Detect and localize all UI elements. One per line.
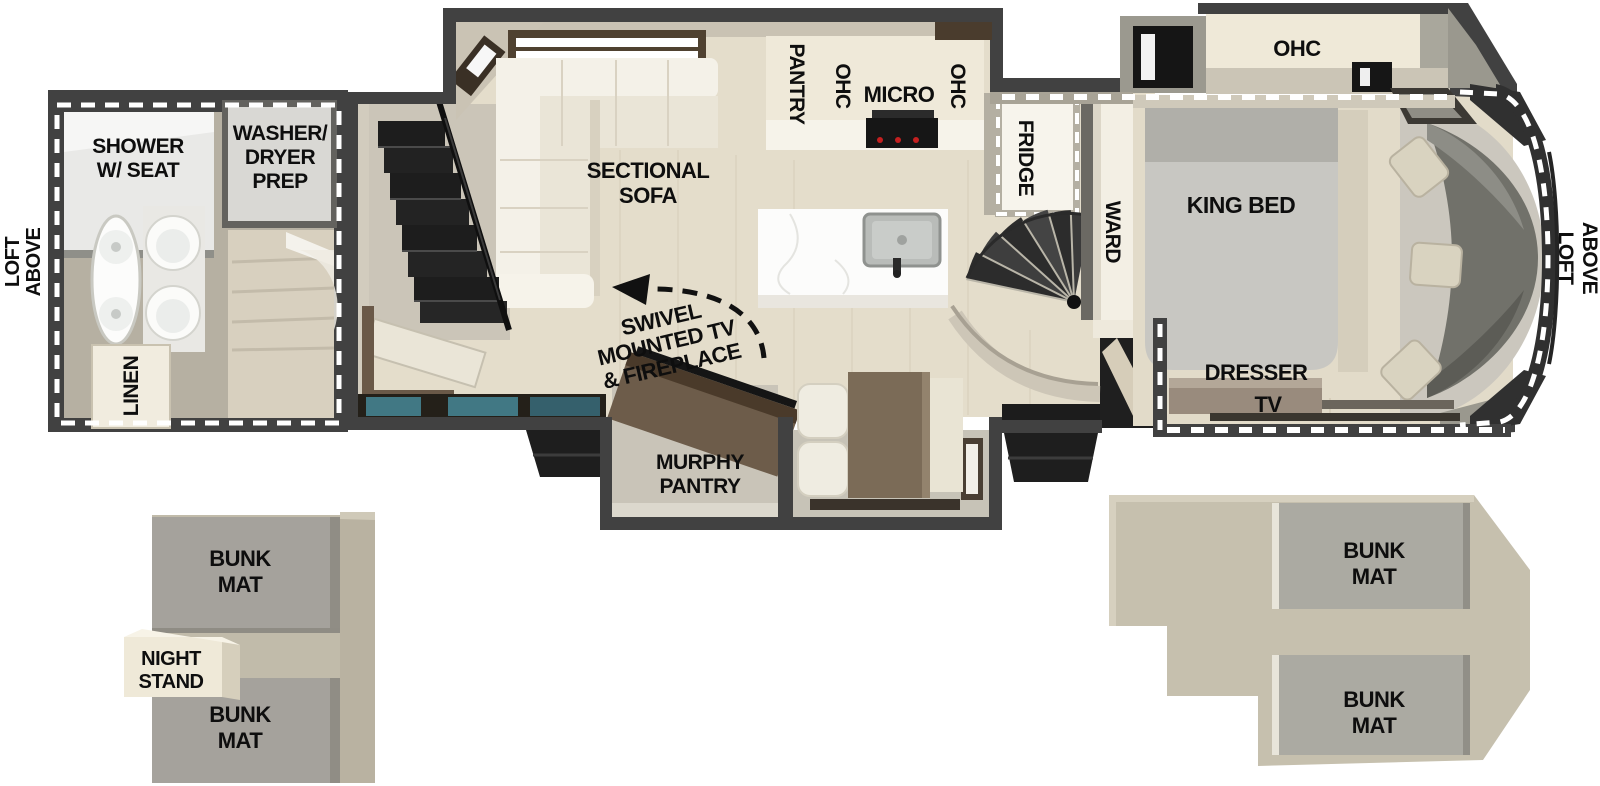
svg-text:DRYER: DRYER — [245, 146, 316, 169]
svg-text:PANTRY: PANTRY — [785, 44, 808, 125]
svg-text:OHC: OHC — [831, 63, 854, 109]
svg-text:ABOVE: ABOVE — [1578, 222, 1600, 295]
svg-text:OHC: OHC — [946, 63, 969, 109]
svg-text:BUNK: BUNK — [209, 546, 271, 571]
svg-text:BUNK: BUNK — [209, 702, 271, 727]
svg-text:STAND: STAND — [139, 671, 204, 693]
svg-text:MICRO: MICRO — [864, 82, 935, 107]
svg-text:OHC: OHC — [1273, 36, 1321, 61]
svg-text:FRIDGE: FRIDGE — [1014, 120, 1037, 197]
svg-text:PREP: PREP — [252, 170, 308, 193]
svg-text:MAT: MAT — [218, 728, 264, 753]
svg-text:PANTRY: PANTRY — [660, 475, 741, 498]
svg-text:SHOWER: SHOWER — [92, 135, 184, 158]
svg-text:BUNK: BUNK — [1343, 538, 1405, 563]
svg-text:MAT: MAT — [1352, 713, 1398, 738]
svg-text:LINEN: LINEN — [120, 356, 143, 417]
svg-text:MAT: MAT — [1352, 564, 1398, 589]
svg-text:KING BED: KING BED — [1187, 192, 1295, 218]
svg-text:W/ SEAT: W/ SEAT — [97, 159, 180, 182]
svg-text:BUNK: BUNK — [1343, 687, 1405, 712]
svg-text:NIGHT: NIGHT — [141, 648, 201, 670]
svg-text:LOFT: LOFT — [2, 237, 24, 287]
svg-text:MURPHY: MURPHY — [656, 451, 744, 474]
svg-text:LOFT: LOFT — [1554, 232, 1577, 285]
svg-text:SECTIONAL: SECTIONAL — [587, 158, 710, 183]
svg-text:DRESSER: DRESSER — [1205, 360, 1308, 385]
svg-text:MAT: MAT — [218, 572, 264, 597]
svg-text:WARD: WARD — [1101, 201, 1124, 263]
svg-text:WASHER/: WASHER/ — [233, 122, 328, 145]
svg-text:SOFA: SOFA — [619, 183, 678, 208]
svg-text:ABOVE: ABOVE — [23, 228, 45, 297]
